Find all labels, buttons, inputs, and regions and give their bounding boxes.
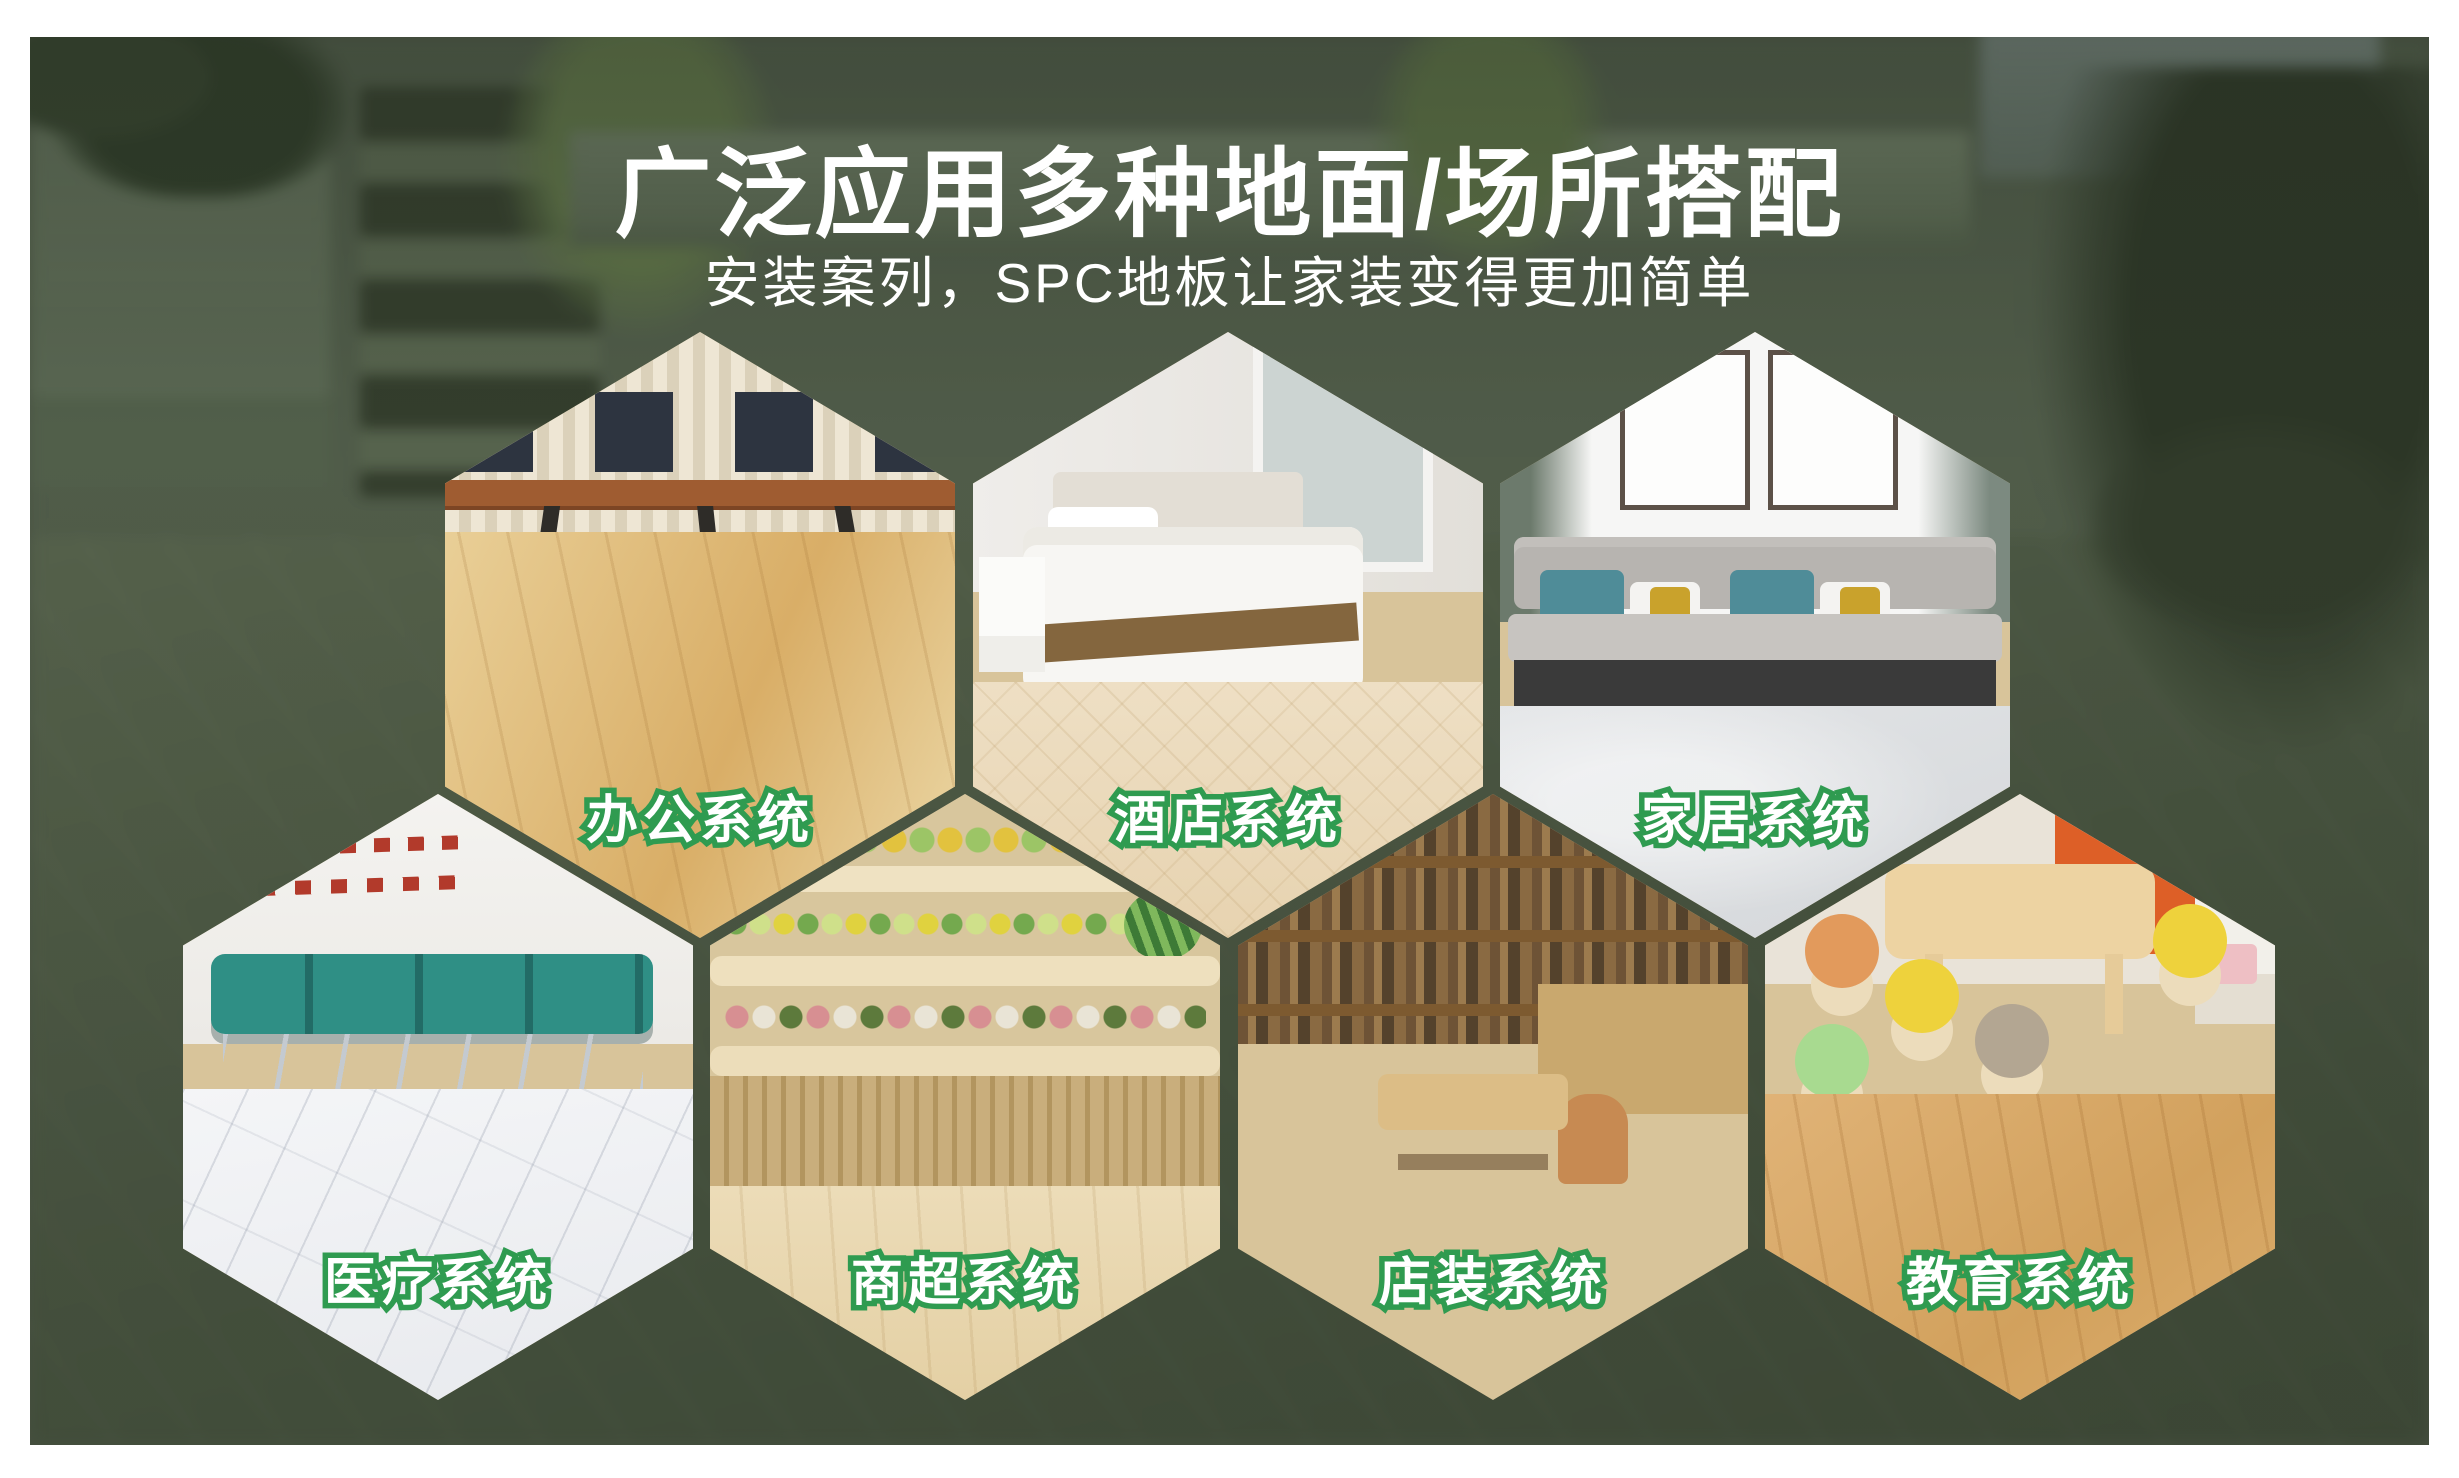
stool-yellow	[2153, 904, 2227, 978]
desk	[445, 480, 955, 506]
stool-gray	[1975, 1004, 2049, 1078]
kids-table	[1885, 864, 2155, 959]
promo-banner: 广泛应用多种地面/场所搭配 安装案列，SPC地板让家装变得更加简单 办公系统 办…	[30, 37, 2429, 1445]
stool-orange	[1805, 914, 1879, 988]
chair-legs	[223, 1034, 643, 1089]
wood-half-wall	[1538, 984, 1748, 1114]
produce-row	[724, 988, 1206, 1046]
wood-slats	[710, 1076, 1220, 1186]
nightstand	[979, 557, 1045, 672]
page: { "header": { "title": "广泛应用多种地面/场所搭配", …	[0, 0, 2459, 1478]
shelf-band	[710, 1046, 1220, 1076]
sofa-base	[1514, 660, 1996, 708]
stool-yellow	[1885, 959, 1959, 1033]
banner-title: 广泛应用多种地面/场所搭配	[30, 115, 2429, 256]
table	[1378, 1074, 1568, 1130]
shelf-band	[710, 956, 1220, 986]
stool-green	[1795, 1024, 1869, 1098]
waiting-chairs	[211, 954, 653, 1034]
banner-subtitle: 安装案列，SPC地板让家装变得更加简单	[30, 238, 2429, 318]
sofa-seat	[1508, 614, 2002, 662]
table-leg	[2105, 954, 2123, 1034]
